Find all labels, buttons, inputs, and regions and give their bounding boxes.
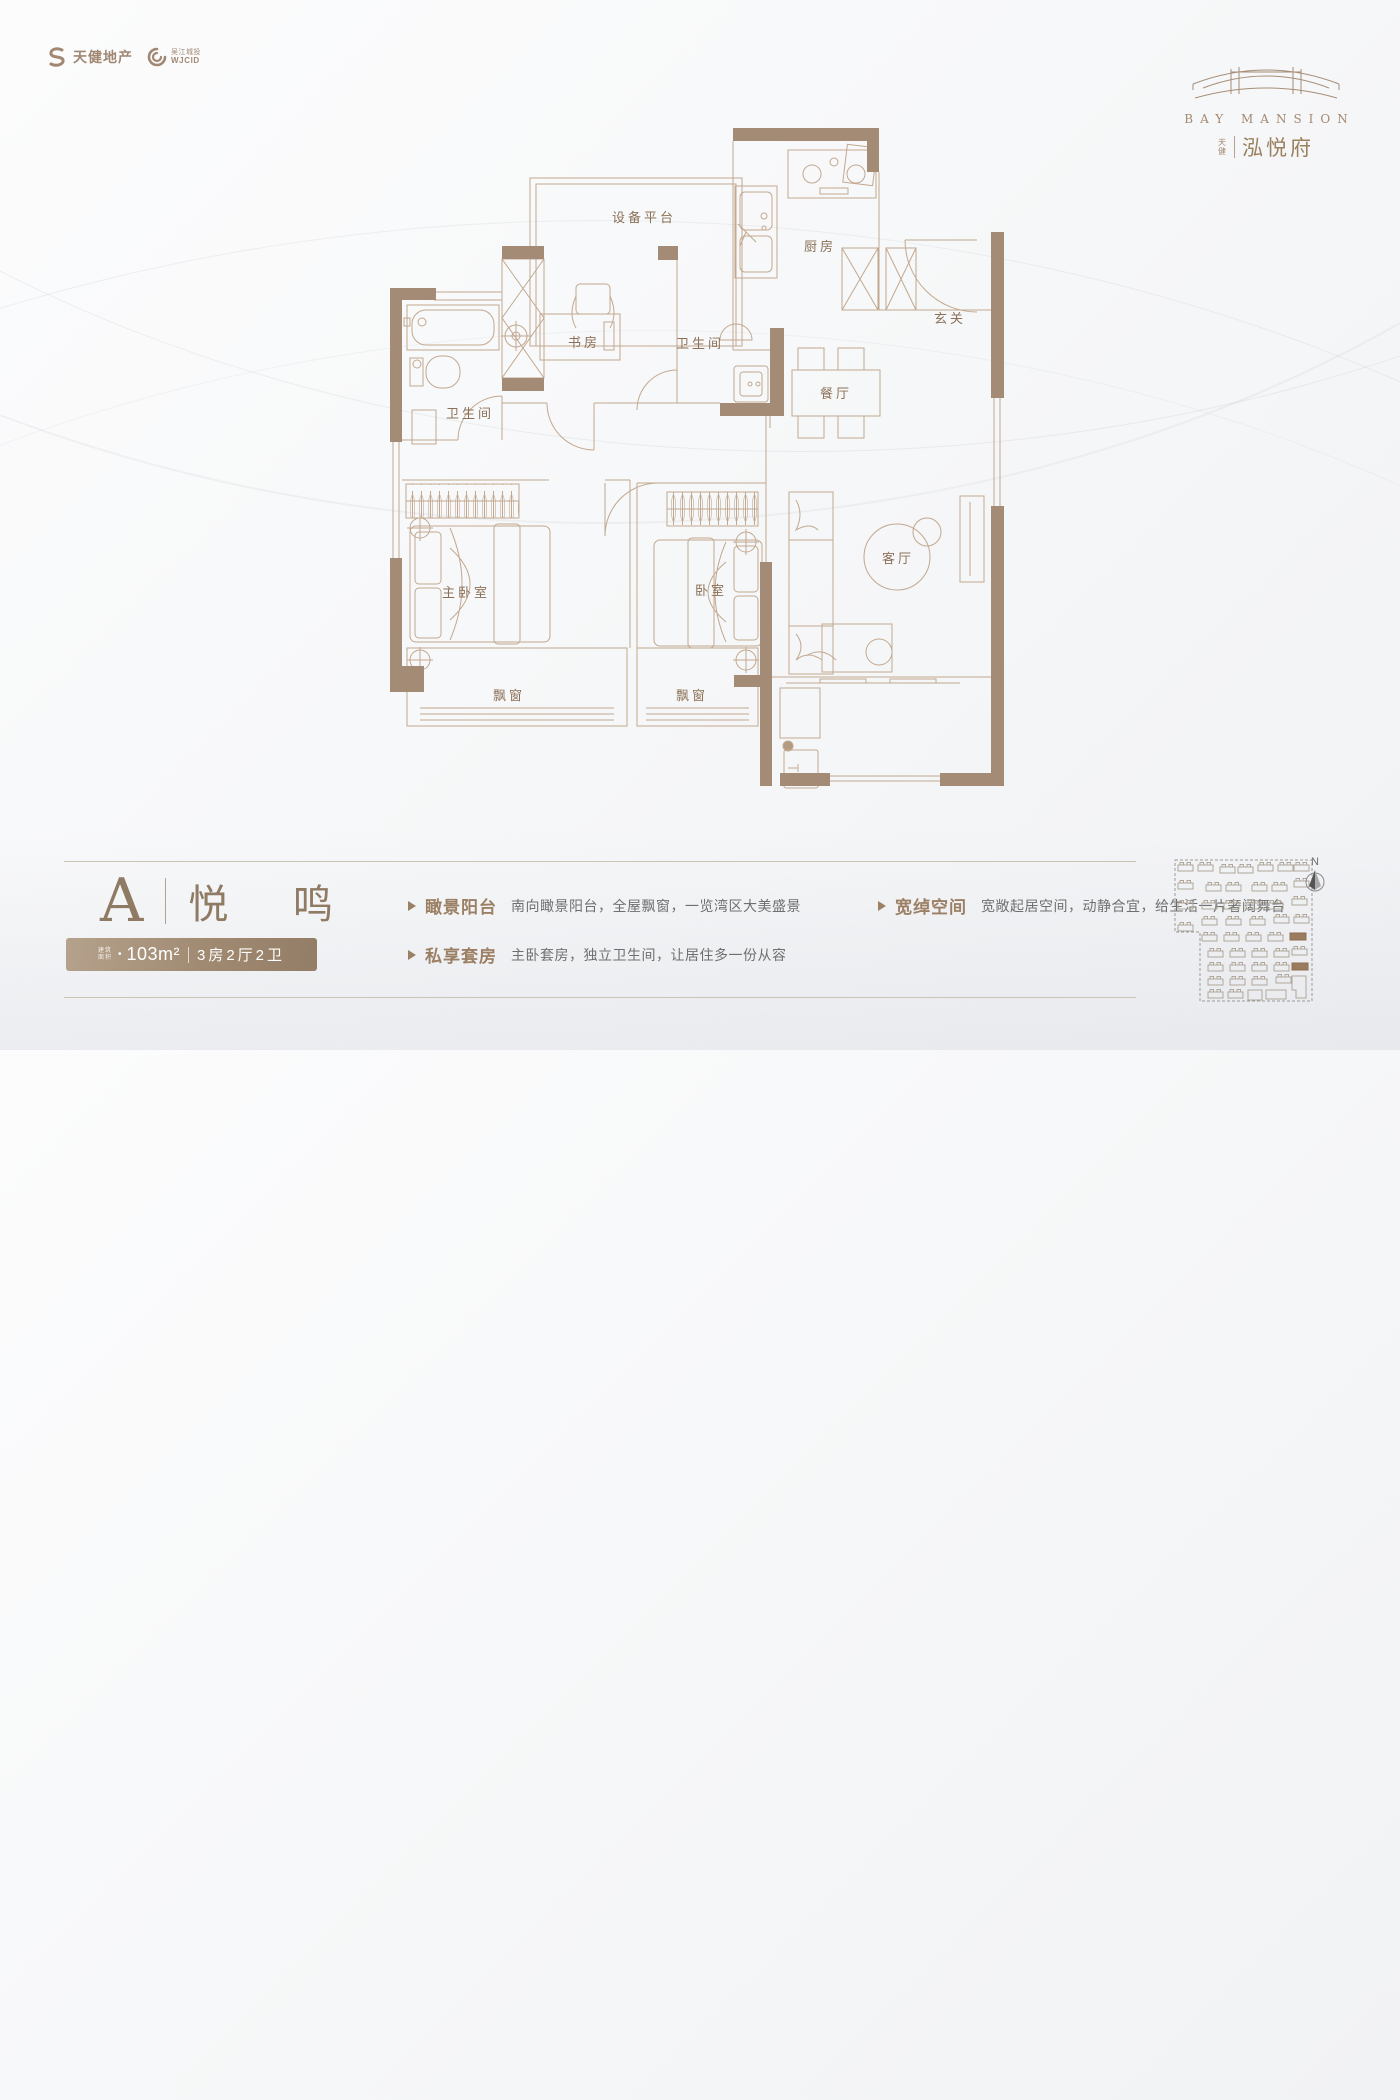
footer-divider-bottom bbox=[64, 997, 1136, 998]
unit-title-divider bbox=[165, 878, 166, 924]
footer-divider-top bbox=[64, 861, 1136, 862]
siteplan-buildings bbox=[1178, 863, 1309, 1001]
area-value: 103m² bbox=[126, 944, 180, 965]
tianjian-logo-text: 天健地产 bbox=[73, 47, 133, 67]
wjcid-logo-en: WJCID bbox=[171, 57, 201, 65]
bay-mansion-building-icon bbox=[1191, 54, 1341, 106]
unit-type-letter: A bbox=[100, 872, 143, 930]
siteplan-map bbox=[1172, 856, 1317, 1009]
area-label-small: 建筑面积 bbox=[98, 948, 113, 962]
floorplan-svg: 设备平台 厨房 玄关 卫生间 书房 卫生间 餐厅 主卧室 卧室 客厅 飘窗 飘窗 bbox=[390, 128, 1012, 796]
tianjian-s-icon bbox=[46, 46, 68, 68]
room-label-bay1: 飘窗 bbox=[493, 688, 525, 704]
plan-labels: 设备平台 厨房 玄关 卫生间 书房 卫生间 餐厅 主卧室 卧室 客厅 飘窗 飘窗 bbox=[442, 210, 966, 704]
area-badge-divider bbox=[188, 947, 189, 963]
feature-list-left: 瞰景阳台 南向瞰景阳台，全屋飘窗，一览湾区大美盛景 私享套房 主卧套房，独立卫生… bbox=[408, 893, 801, 991]
room-label-bath2: 卫生间 bbox=[676, 337, 724, 352]
feature-desc: 主卧套房，独立卫生间，让居住多一份从容 bbox=[511, 945, 787, 965]
bullet-arrow-icon bbox=[878, 901, 886, 911]
brand-divider bbox=[1234, 136, 1235, 158]
tianjian-logo: 天健地产 bbox=[46, 46, 133, 68]
room-label-kitchen: 厨房 bbox=[804, 239, 836, 255]
unit-name: 悦 鸣 bbox=[188, 872, 359, 930]
wjcid-logo: 吴江城投 WJCID bbox=[147, 47, 201, 67]
header-logos: 天健地产 吴江城投 WJCID bbox=[46, 46, 201, 68]
bullet-arrow-icon bbox=[408, 950, 416, 960]
room-label-bedroom: 卧室 bbox=[695, 583, 727, 599]
room-label-dining: 餐厅 bbox=[820, 386, 852, 402]
room-label-equipment: 设备平台 bbox=[612, 210, 676, 226]
feature-item: 私享套房 主卧套房，独立卫生间，让居住多一份从容 bbox=[408, 942, 801, 967]
feature-item: 瞰景阳台 南向瞰景阳台，全屋飘窗，一览湾区大美盛景 bbox=[408, 893, 801, 918]
room-label-bath1: 卫生间 bbox=[446, 407, 494, 422]
feature-title: 瞰景阳台 bbox=[425, 893, 497, 918]
feature-title: 宽绰空间 bbox=[895, 893, 967, 918]
feature-title: 私享套房 bbox=[425, 942, 497, 967]
compass-n-label: N bbox=[1303, 856, 1327, 868]
room-label-foyer: 玄关 bbox=[934, 312, 966, 327]
brand-logo: BAY MANSION 天 健 泓悦府 bbox=[1178, 54, 1354, 162]
brand-prefix: 天 健 bbox=[1218, 138, 1227, 156]
compass: N bbox=[1303, 856, 1327, 899]
siteplan-svg bbox=[1172, 856, 1317, 1004]
area-dot: • bbox=[118, 949, 122, 960]
area-badge: 建筑面积 • 103m² 3房2厅2卫 bbox=[66, 938, 317, 971]
wjcid-swirl-icon bbox=[147, 47, 167, 67]
bullet-arrow-icon bbox=[408, 901, 416, 911]
brand-en-text: BAY MANSION bbox=[1177, 112, 1355, 126]
compass-needle-icon bbox=[1303, 868, 1327, 894]
room-label-master: 主卧室 bbox=[442, 585, 490, 601]
floorplan: 设备平台 厨房 玄关 卫生间 书房 卫生间 餐厅 主卧室 卧室 客厅 飘窗 飘窗 bbox=[390, 128, 1012, 801]
room-label-study: 书房 bbox=[568, 335, 600, 351]
layout-value: 3房2厅2卫 bbox=[197, 944, 285, 965]
room-label-bay2: 飘窗 bbox=[676, 688, 708, 704]
room-label-living: 客厅 bbox=[882, 551, 914, 567]
brand-cn-text: 泓悦府 bbox=[1242, 132, 1314, 162]
unit-title: A 悦 鸣 bbox=[100, 872, 359, 930]
feature-desc: 南向瞰景阳台，全屋飘窗，一览湾区大美盛景 bbox=[511, 896, 801, 916]
plan-walls bbox=[390, 128, 1004, 786]
